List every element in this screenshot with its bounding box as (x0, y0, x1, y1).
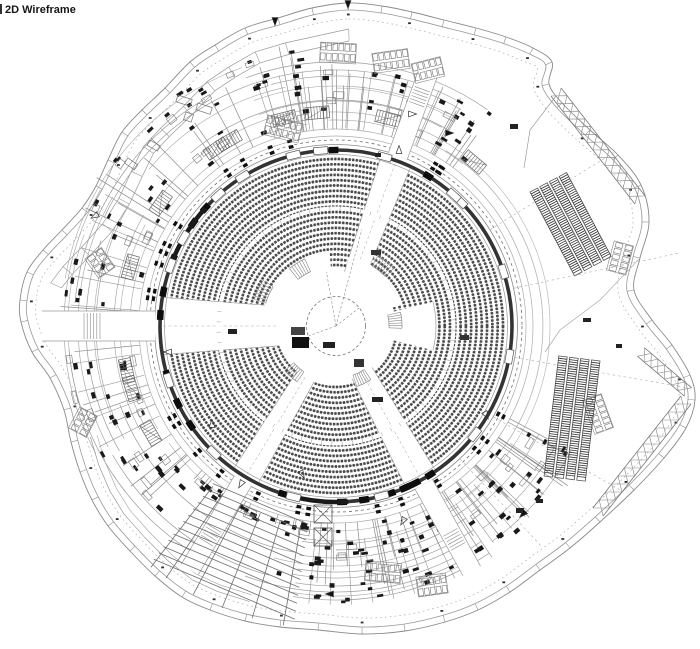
svg-text:2D Wireframe: 2D Wireframe (5, 4, 76, 16)
